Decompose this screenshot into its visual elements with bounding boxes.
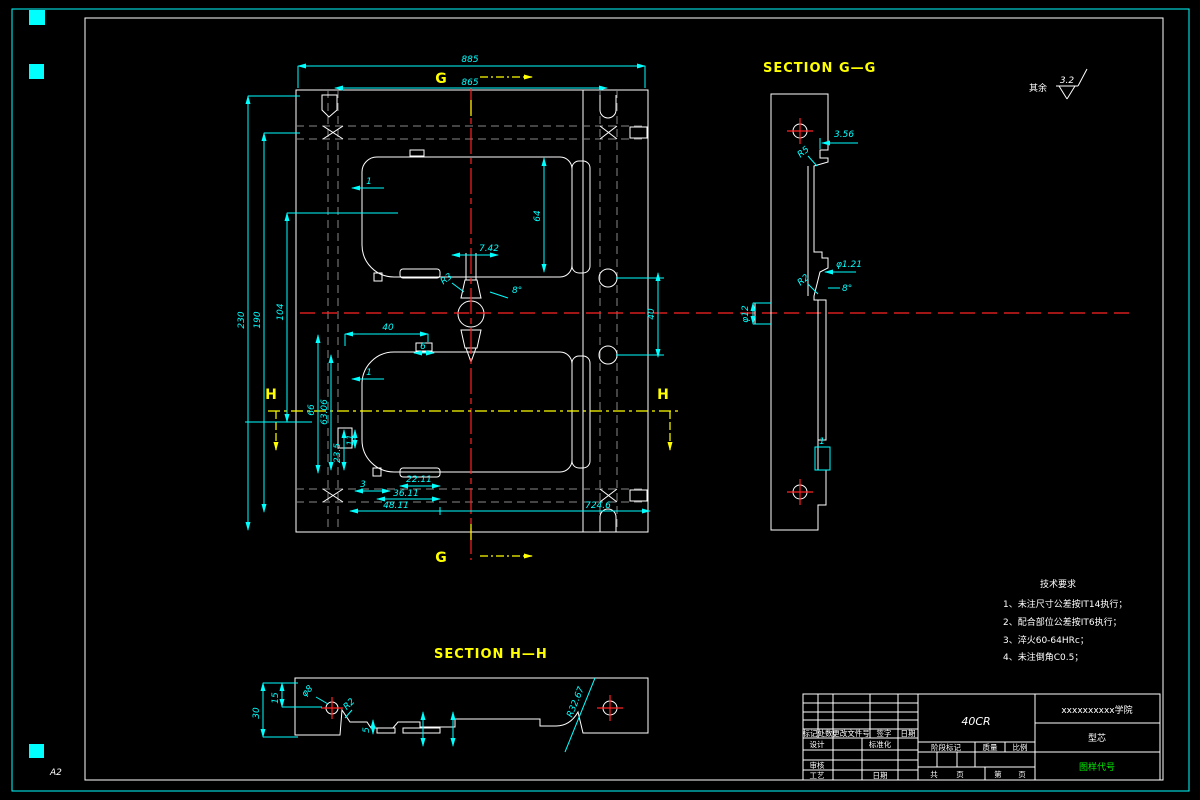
tb-date: 日期 bbox=[873, 771, 888, 780]
sheet-format-label: A2 bbox=[49, 768, 62, 778]
tech-req-title: 技术要求 bbox=[1040, 578, 1076, 590]
tb-scale: 比例 bbox=[1013, 742, 1028, 752]
tb-sheet-page: 页 bbox=[1018, 770, 1026, 779]
tb-sheet: 第 bbox=[994, 769, 1002, 779]
tech-req-item-3: 3、淬火60-64HRc； bbox=[1003, 634, 1089, 646]
section-g-label-bottom: G bbox=[435, 550, 447, 566]
dim-22-11: 22.11 bbox=[406, 475, 432, 485]
drawing-canvas: A2 其余 3.2 bbox=[0, 0, 1200, 800]
tb-total: 共 bbox=[930, 770, 938, 779]
tech-requirements: 技术要求 1、未注尺寸公差按IT14执行； 2、配合部位公差按IT6执行； 3、… bbox=[1003, 578, 1127, 663]
section-hh-title: SECTION H—H bbox=[434, 647, 548, 662]
dim-inner-width: 865 bbox=[461, 78, 478, 88]
main-view-geometry bbox=[296, 90, 648, 532]
tb-total-page: 页 bbox=[956, 770, 964, 779]
dim-tab-6: 6 bbox=[420, 342, 426, 352]
dim-v-11: 11 bbox=[346, 434, 356, 445]
dim-48-11: 48.11 bbox=[383, 501, 409, 511]
dim-v-63-06: 63.06 bbox=[320, 399, 330, 425]
hh-dim-15: 15 bbox=[271, 692, 281, 704]
section-h-label-right: H bbox=[657, 387, 669, 403]
finish-prefix: 其余 bbox=[1029, 82, 1047, 94]
dim-overall-height: 230 bbox=[237, 311, 247, 328]
tech-req-item-1: 1、未注尺寸公差按IT14执行； bbox=[1003, 598, 1127, 610]
tb-company: xxxxxxxxxx学院 bbox=[1061, 704, 1132, 716]
gg-dim-dia12: φ12 bbox=[741, 305, 751, 323]
dim-corner-1-bottom: 1 bbox=[366, 368, 372, 378]
dim-hole-pitch: 40 bbox=[647, 308, 657, 320]
section-cut-lines bbox=[268, 77, 680, 556]
tb-design: 设计 bbox=[810, 739, 825, 749]
dim-gate-width: 7.42 bbox=[479, 244, 499, 254]
hh-dim-5: 5 bbox=[362, 727, 372, 733]
hh-dim-r2: R2 bbox=[342, 697, 358, 713]
dim-gate-radius: R3 bbox=[439, 272, 455, 287]
section-gg-dimensions bbox=[753, 138, 858, 470]
gg-dim-detail1: 1 bbox=[819, 437, 825, 447]
center-lines bbox=[300, 88, 1135, 560]
tb-rev-sign: 签字 bbox=[877, 728, 892, 738]
gg-dim-dia121: φ1.21 bbox=[836, 260, 862, 270]
section-g-label-top: G bbox=[435, 71, 447, 87]
dim-v-23-5: 23.5 bbox=[333, 443, 343, 463]
tb-weight: 质量 bbox=[983, 742, 998, 752]
tb-rev-docno: 更改文件号 bbox=[832, 728, 870, 738]
dim-cavity-width: 724.6 bbox=[585, 501, 611, 511]
dim-overall-width: 885 bbox=[461, 55, 478, 65]
dim-v-66: 66 bbox=[307, 404, 317, 416]
tb-material: 40CR bbox=[961, 715, 990, 728]
hh-dim-dia8: φ8 bbox=[300, 684, 316, 700]
dim-corner-1-top: 1 bbox=[366, 177, 372, 187]
section-h-label-left: H bbox=[265, 387, 277, 403]
main-view-dimensions bbox=[245, 66, 664, 530]
dim-offset-40: 40 bbox=[382, 323, 394, 333]
dim-cavity-height: 64 bbox=[533, 210, 543, 222]
dim-gate-angle: 8° bbox=[512, 286, 522, 296]
dim-inner-height: 104 bbox=[276, 303, 286, 320]
hh-dim-r3267: R32.67 bbox=[566, 685, 587, 719]
tb-review: 审核 bbox=[810, 760, 825, 770]
tb-rev-count: 处数 bbox=[818, 728, 833, 738]
tb-part-name: 型芯 bbox=[1088, 732, 1106, 744]
gg-dim-step: 3.56 bbox=[834, 130, 854, 140]
gg-dim-angle8: 8° bbox=[842, 284, 852, 294]
finish-roughness-value: 3.2 bbox=[1060, 76, 1075, 86]
dim-36-11: 36.11 bbox=[393, 489, 419, 499]
dim-mid-height: 190 bbox=[253, 311, 263, 328]
tb-drawing-code: 图样代号 bbox=[1079, 761, 1115, 773]
tb-rev-date: 日期 bbox=[901, 729, 916, 738]
surface-finish-symbol: 其余 3.2 bbox=[1029, 69, 1087, 99]
tb-stage-mark: 阶段标记 bbox=[931, 742, 961, 752]
tb-standardization: 标准化 bbox=[869, 739, 892, 749]
tech-req-item-4: 4、未注倒角C0.5； bbox=[1003, 651, 1083, 663]
tech-req-item-2: 2、配合部位公差按IT6执行； bbox=[1003, 616, 1122, 628]
dim-3: 3 bbox=[360, 480, 366, 490]
tb-rev-mark: 标记 bbox=[803, 728, 818, 738]
hh-dim-30: 30 bbox=[252, 707, 262, 719]
tb-process: 工艺 bbox=[810, 771, 825, 780]
section-gg-geometry bbox=[755, 94, 828, 530]
section-gg-title: SECTION G—G bbox=[763, 61, 876, 76]
cad-drawing-sheet: A2 其余 3.2 bbox=[0, 0, 1200, 800]
